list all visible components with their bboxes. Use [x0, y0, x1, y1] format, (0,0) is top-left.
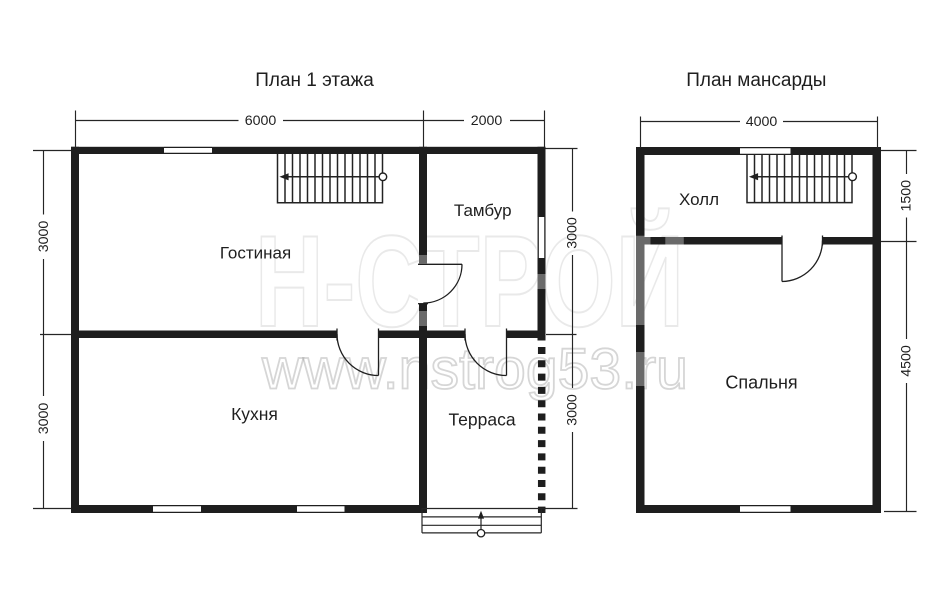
svg-text:Гостиная: Гостиная	[220, 244, 291, 263]
svg-text:3000: 3000	[565, 217, 581, 249]
svg-text:3000: 3000	[36, 221, 52, 253]
svg-text:План мансарды: План мансарды	[686, 70, 826, 91]
svg-text:www.nstrog53.ru: www.nstrog53.ru	[261, 338, 688, 402]
svg-text:4500: 4500	[899, 345, 915, 377]
svg-text:Холл: Холл	[679, 190, 719, 209]
svg-text:6000: 6000	[245, 113, 277, 129]
svg-text:Тамбур: Тамбур	[454, 201, 512, 220]
svg-text:Кухня: Кухня	[231, 404, 278, 424]
svg-text:2000: 2000	[471, 113, 503, 129]
svg-text:Спальня: Спальня	[725, 373, 797, 393]
svg-text:3000: 3000	[565, 394, 581, 426]
svg-text:3000: 3000	[36, 403, 52, 435]
svg-text:1500: 1500	[899, 180, 915, 212]
svg-text:План 1 этажа: План 1 этажа	[255, 70, 374, 91]
svg-text:4000: 4000	[746, 114, 778, 130]
svg-text:Терраса: Терраса	[448, 409, 515, 429]
